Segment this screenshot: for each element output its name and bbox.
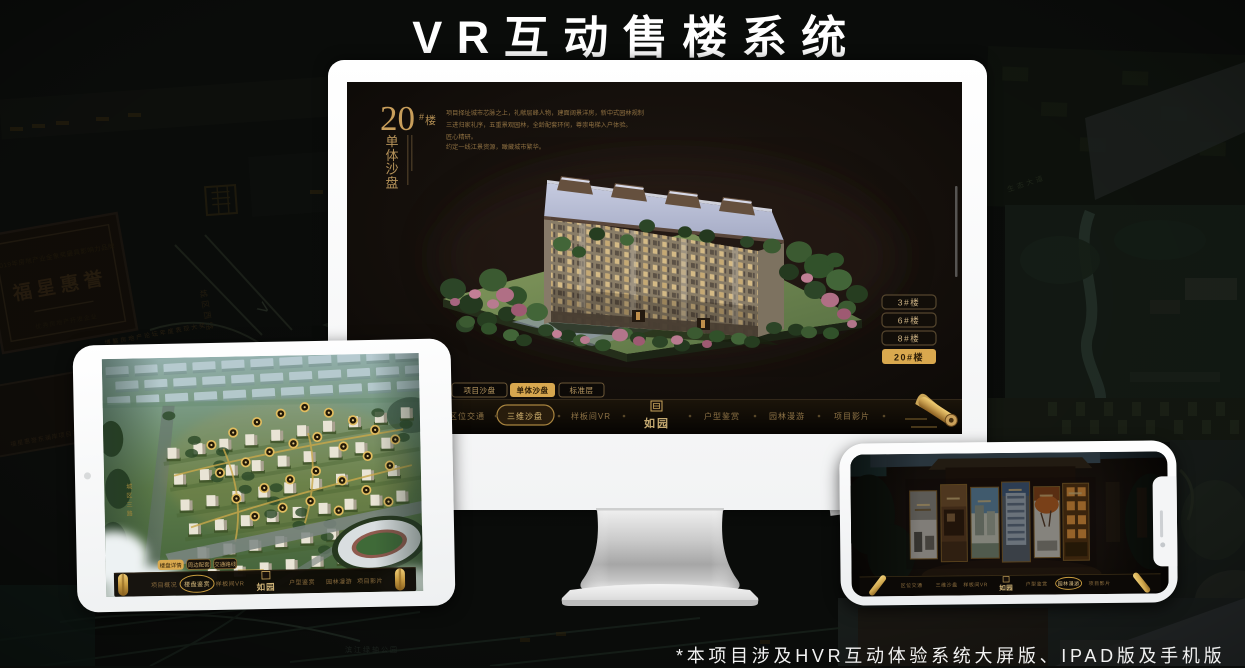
svg-text:户型鉴赏: 户型鉴赏 xyxy=(1026,581,1048,588)
svg-text:楼: 楼 xyxy=(425,113,436,127)
svg-text:园林漫游: 园林漫游 xyxy=(769,411,805,421)
svg-text:约定一线江景资源，瞰藏城市繁华。: 约定一线江景资源，瞰藏城市繁华。 xyxy=(446,143,545,151)
svg-text:如园: 如园 xyxy=(999,583,1013,592)
svg-text:户型鉴赏: 户型鉴赏 xyxy=(704,411,740,421)
svg-text:园林漫游: 园林漫游 xyxy=(1058,580,1080,587)
svg-text:项目择址城市芯脉之上，礼献层峰人物，建面阔景洋房，新中式园林: 项目择址城市芯脉之上，礼献层峰人物，建面阔景洋房，新中式园林规制 xyxy=(446,109,644,117)
svg-text:单体沙盘: 单体沙盘 xyxy=(385,134,398,190)
svg-text:项目沙盘: 项目沙盘 xyxy=(464,385,496,395)
svg-text:如园: 如园 xyxy=(257,582,276,592)
svg-text:8#楼: 8#楼 xyxy=(898,334,920,344)
svg-text:样板间VR: 样板间VR xyxy=(963,581,988,588)
svg-text:单体沙盘: 单体沙盘 xyxy=(517,385,549,395)
svg-text:6#楼: 6#楼 xyxy=(898,316,920,326)
svg-text:如园: 如园 xyxy=(644,416,670,430)
svg-text:3#楼: 3#楼 xyxy=(898,298,920,308)
svg-text:#: # xyxy=(419,112,424,122)
svg-text:20: 20 xyxy=(380,99,415,138)
svg-text:三维沙盘: 三维沙盘 xyxy=(507,411,543,421)
svg-text:标准层: 标准层 xyxy=(570,385,594,395)
svg-text:区位交通: 区位交通 xyxy=(449,411,485,421)
svg-text:项目影片: 项目影片 xyxy=(1089,580,1111,587)
svg-text:三进归家礼序，五重景观园林，全龄配套环伺，尊崇电梯入户体验。: 三进归家礼序，五重景观园林，全龄配套环伺，尊崇电梯入户体验。 xyxy=(446,121,632,129)
svg-text:20#楼: 20#楼 xyxy=(894,352,924,363)
svg-text:匠心精研。: 匠心精研。 xyxy=(446,133,477,141)
svg-text:区位交通: 区位交通 xyxy=(901,582,923,589)
svg-text:三维沙盘: 三维沙盘 xyxy=(936,582,958,589)
svg-text:样板间VR: 样板间VR xyxy=(571,411,611,421)
svg-text:项目影片: 项目影片 xyxy=(834,411,870,421)
